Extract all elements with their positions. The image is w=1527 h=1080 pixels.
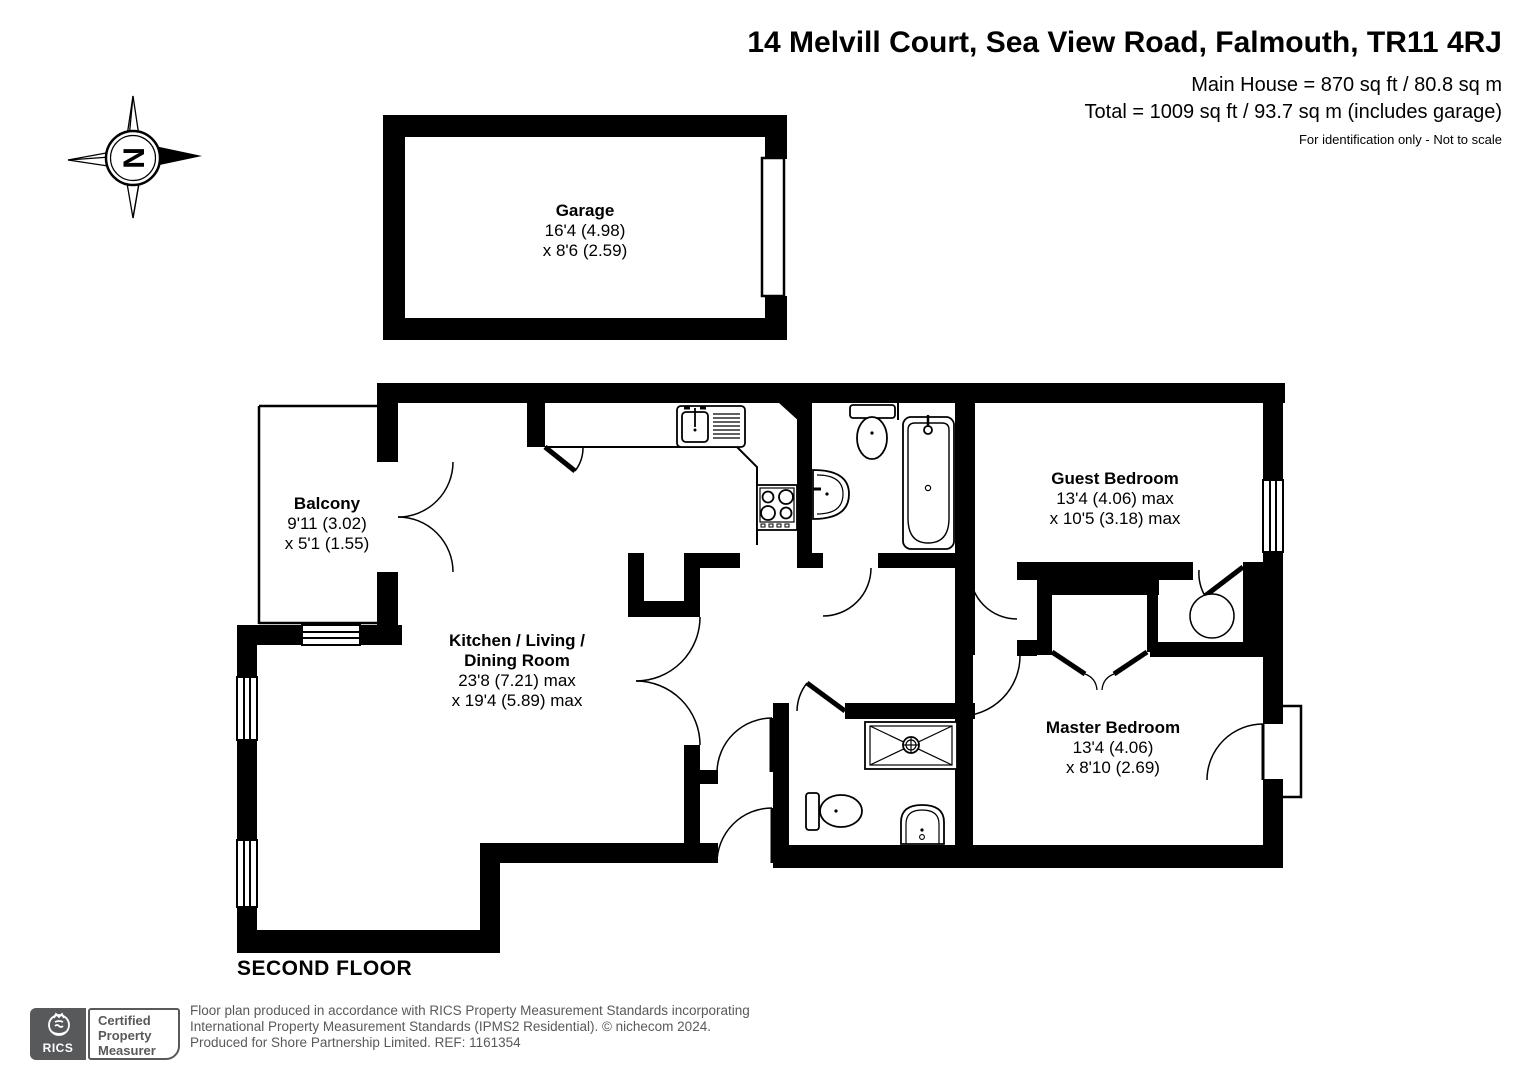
bathroom-sink-icon <box>813 470 849 519</box>
certified-property-measurer-badge: Certified Property Measurer <box>88 1008 180 1060</box>
toilet-icon <box>850 405 895 459</box>
window-icon <box>237 480 1283 907</box>
room-label-kitchen-living-dining: Kitchen / Living / Dining Room 23'8 (7.2… <box>449 631 585 711</box>
bathtub-icon <box>903 415 954 549</box>
scale-disclaimer: For identification only - Not to scale <box>602 132 1502 147</box>
ensuite-sink-icon <box>901 805 944 844</box>
airing-cupboard <box>1150 580 1263 657</box>
rics-logo: RICS <box>30 1008 86 1060</box>
compass-north-icon: N <box>60 88 210 228</box>
garage-door-icon <box>762 140 784 314</box>
hob-icon <box>757 485 797 530</box>
room-label-guest-bedroom: Guest Bedroom 13'4 (4.06) max x 10'5 (3.… <box>1050 469 1181 529</box>
footer-disclaimer: Floor plan produced in accordance with R… <box>190 1003 750 1051</box>
balcony-french-doors-icon <box>398 462 453 572</box>
compass-north-label: N <box>117 147 150 169</box>
kitchen-sink-icon <box>677 406 745 447</box>
ensuite-toilet-icon <box>806 793 862 830</box>
floorplan-drawing <box>0 0 1527 1080</box>
room-label-balcony: Balcony 9'11 (3.02) x 5'1 (1.55) <box>285 494 370 554</box>
area-total: Total = 1009 sq ft / 93.7 sq m (includes… <box>602 101 1502 124</box>
hallway <box>636 617 772 863</box>
floorplan-page: N 14 Melvill Court, Sea View Road, Falmo… <box>0 0 1527 1080</box>
room-label-master-bedroom: Master Bedroom 13'4 (4.06) x 8'10 (2.69) <box>1046 718 1180 778</box>
area-main-house: Main House = 870 sq ft / 80.8 sq m <box>602 74 1502 97</box>
shower-icon <box>865 722 957 769</box>
floor-name-label: SECOND FLOOR <box>237 957 412 981</box>
rics-logo-text: RICS <box>30 1041 86 1055</box>
wardrobe <box>1037 575 1159 690</box>
page-title: 14 Melvill Court, Sea View Road, Falmout… <box>302 26 1502 60</box>
cylinder-icon <box>1190 594 1234 638</box>
room-label-garage: Garage 16'4 (4.98) x 8'6 (2.59) <box>543 201 628 261</box>
